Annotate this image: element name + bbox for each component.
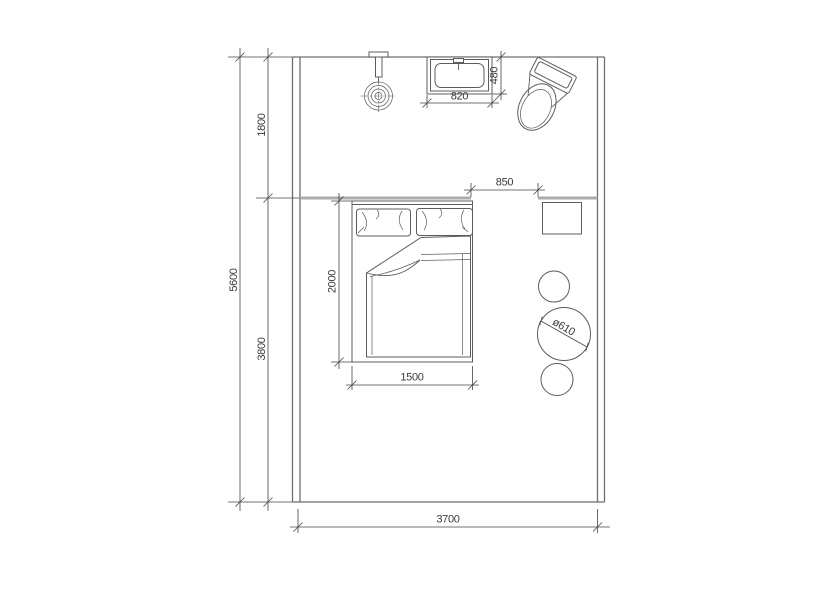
floor-plan-drawing: 5600 1800 3800 3700 820 480 [0, 0, 837, 592]
dim-room-width: 3700 [290, 509, 610, 533]
pillow-left [357, 209, 411, 236]
stool-bottom [541, 364, 573, 396]
dim-label-opening-width: 850 [496, 177, 514, 189]
dim-label-lower-zone: 3800 [256, 337, 268, 360]
wash-basin [427, 57, 492, 94]
dim-opening-width: 850 [464, 177, 545, 198]
floor-plan-canvas: 5600 1800 3800 3700 820 480 [0, 0, 837, 592]
double-bed [352, 201, 473, 362]
stool-top [539, 271, 570, 302]
dim-label-upper-zone: 1800 [256, 113, 268, 136]
dim-label-basin-depth: 480 [489, 67, 501, 85]
dim-label-basin-width: 820 [451, 91, 469, 103]
toilet [506, 57, 577, 139]
dim-label-total-height: 5600 [228, 268, 240, 291]
dim-bed-width: 1500 [346, 366, 479, 390]
pillow-right [417, 209, 473, 236]
dim-total-height: 5600 [228, 48, 245, 511]
nightstand [543, 203, 582, 235]
dim-bed-length: 2000 [327, 193, 353, 369]
dim-label-room-width: 3700 [436, 514, 459, 526]
dim-label-bed-width: 1500 [400, 372, 423, 384]
shower-head [361, 52, 397, 114]
dim-label-bed-length: 2000 [327, 270, 339, 293]
